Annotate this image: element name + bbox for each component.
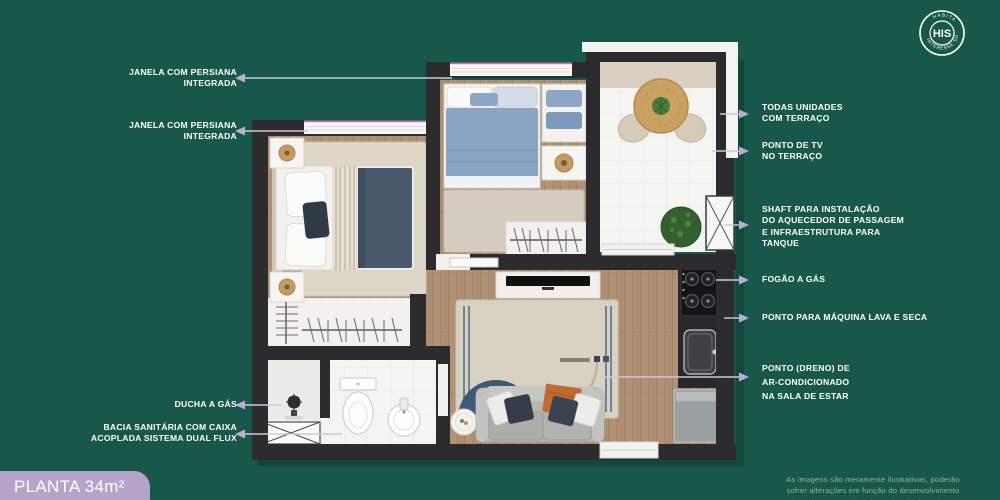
annotation-tv: PONTO DE TV NO TERRAÇO: [762, 140, 823, 163]
kitchen-sink: [684, 330, 718, 374]
door-leaf: [450, 258, 498, 267]
side-table: [451, 409, 477, 435]
his-logo: HIS HABITAÇÃO DE INTERESSE SOCIAL: [917, 8, 967, 58]
logo-his-text: HIS: [933, 28, 951, 40]
plan-title-badge: PLANTA 34m² (A): [0, 471, 150, 500]
bedroom1-furniture: [270, 138, 426, 302]
annotation-bacia: BACIA SANITÁRIA COM CAIXA ACOPLADA SISTE…: [91, 422, 237, 445]
bedroom2-furniture: [444, 84, 586, 260]
bed2-duvet: [446, 108, 538, 184]
navy-cushion: [302, 201, 330, 239]
annotation-dreno: PONTO (DRENO) DE AR-CONDICIONADO NA SALA…: [762, 362, 850, 403]
bedroom1-window: [304, 120, 426, 134]
plan-title: PLANTA 34m² (A): [14, 477, 150, 500]
gas-cooktop: [681, 266, 718, 316]
bed1-duvet: [358, 168, 412, 268]
bedroom2-window: [450, 62, 572, 76]
annotation-lava-seca: PONTO PARA MÁQUINA LAVA E SECA: [762, 312, 927, 323]
annotation-terraco: TODAS UNIDADES COM TERRAÇO: [762, 102, 843, 125]
closet-floor: [268, 298, 410, 352]
annotation-janela-1: JANELA COM PERSIANA INTEGRADA: [129, 67, 237, 90]
bathroom-door-gap: [438, 364, 448, 416]
marketing-floorplan-page: JANELA COM PERSIANA INTEGRADA JANELA COM…: [0, 0, 1000, 500]
toilet-tank-vent: [262, 422, 320, 444]
potted-plant: [661, 207, 701, 247]
annotation-shaft: SHAFT PARA INSTALAÇÃO DO AQUECEDOR DE PA…: [762, 204, 904, 249]
sofa: [476, 384, 604, 442]
shaft: [706, 196, 734, 250]
tv: [506, 276, 590, 286]
kitchen: [674, 262, 722, 442]
legal-disclaimer: As imagens são meramente ilustrativas, p…: [748, 474, 998, 500]
annotation-ducha: DUCHA A GÁS: [175, 399, 237, 410]
annotation-janela-2: JANELA COM PERSIANA INTEGRADA: [129, 120, 237, 143]
annotation-fogao: FOGÃO A GÁS: [762, 274, 825, 285]
